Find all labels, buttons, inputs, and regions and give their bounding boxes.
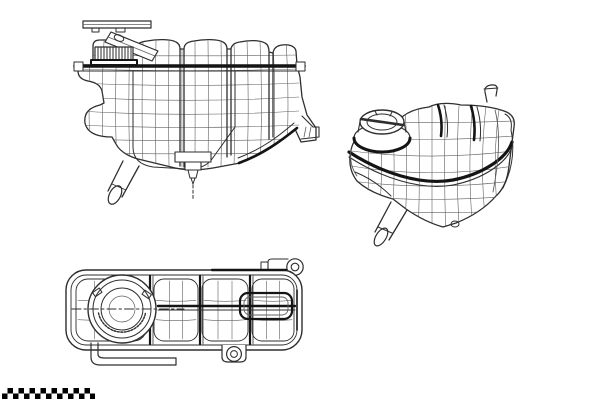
top-bracket xyxy=(83,21,151,32)
tank-side-view xyxy=(75,15,320,200)
tank-top-view-drawing xyxy=(62,258,307,373)
top-hook-fitting xyxy=(484,85,498,102)
bottom-port-fitting xyxy=(222,345,246,362)
bottom-outlet-spout xyxy=(105,161,139,206)
checkered-watermark xyxy=(2,388,95,399)
tank-perspective-view xyxy=(345,80,520,247)
drain-fitting xyxy=(175,152,211,199)
pressure-cap xyxy=(91,47,137,65)
tank-side-view-drawing xyxy=(75,15,320,200)
filler-neck-and-cap xyxy=(354,110,410,152)
technical-drawing-canvas xyxy=(0,0,600,400)
tank-top-view xyxy=(62,258,307,373)
tank-perspective-view-drawing xyxy=(345,80,520,247)
